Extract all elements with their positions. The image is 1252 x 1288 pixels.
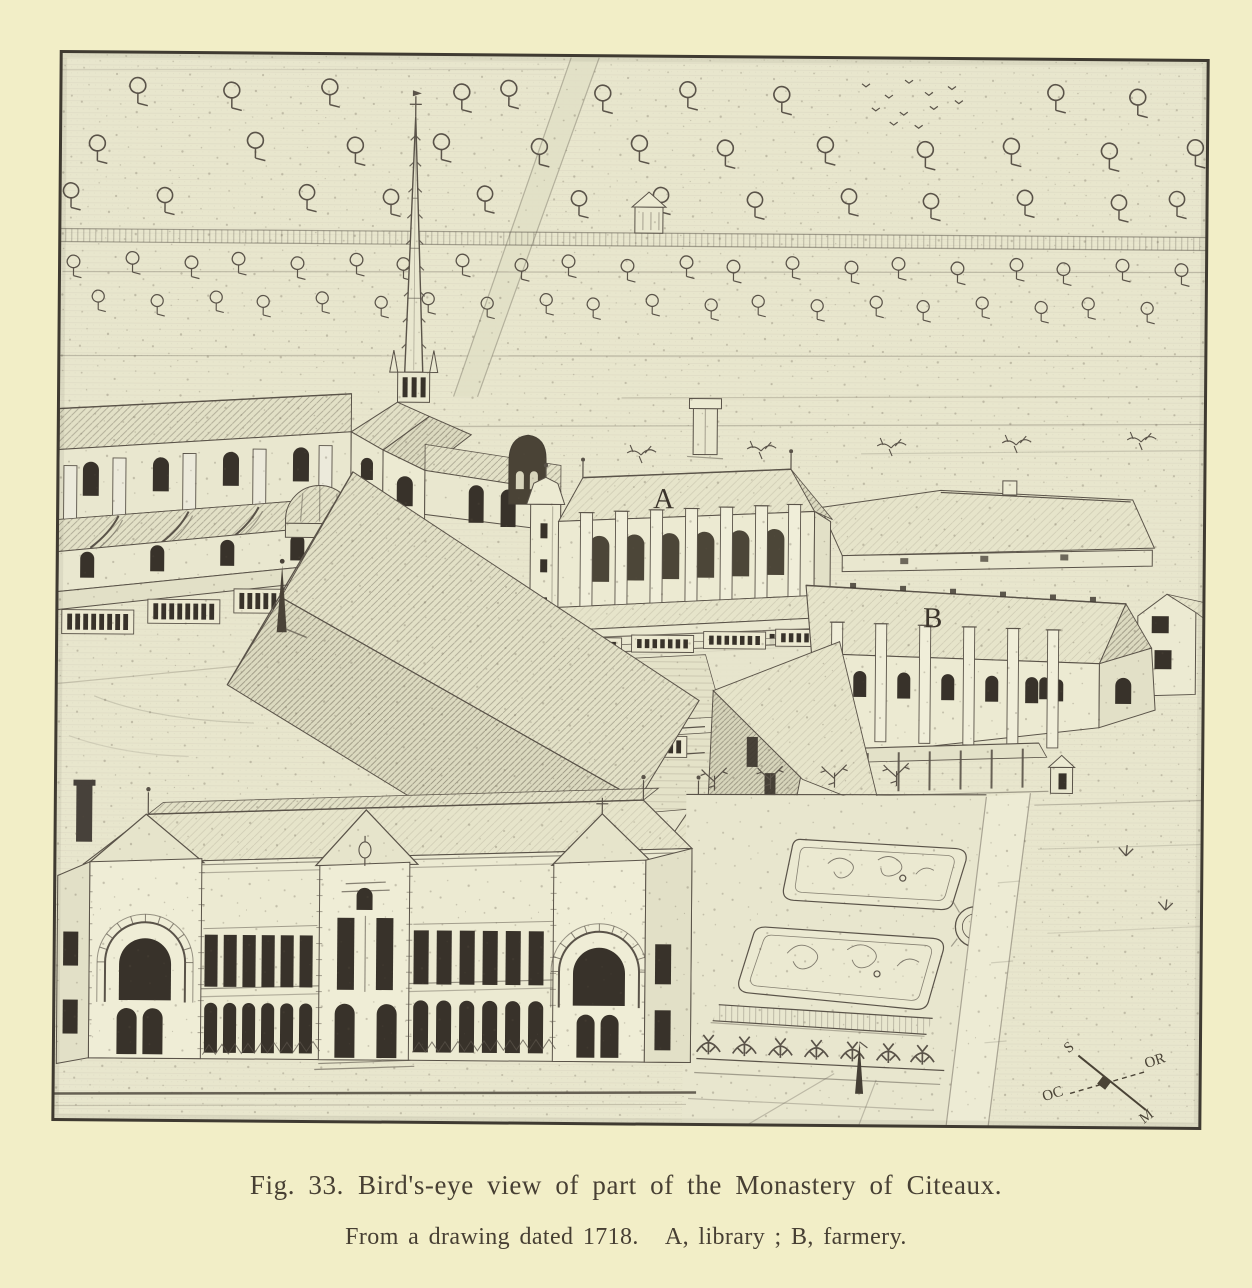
caption-line-2: From a drawing dated 1718.A, library ; B…	[0, 1224, 1252, 1251]
figure-number: Fig. 33.	[250, 1170, 344, 1200]
caption-subtitle-right: A, library ; B, farmery.	[665, 1224, 907, 1250]
caption-line-1: Fig. 33.Bird's-eye view of part of the M…	[0, 1170, 1252, 1201]
book-page: A	[0, 0, 1252, 1283]
engraving-plate: A	[0, 0, 1252, 1283]
caption-subtitle-left: From a drawing dated 1718.	[345, 1224, 639, 1250]
figure-title: Bird's-eye view of part of the Monastery…	[358, 1170, 1002, 1200]
